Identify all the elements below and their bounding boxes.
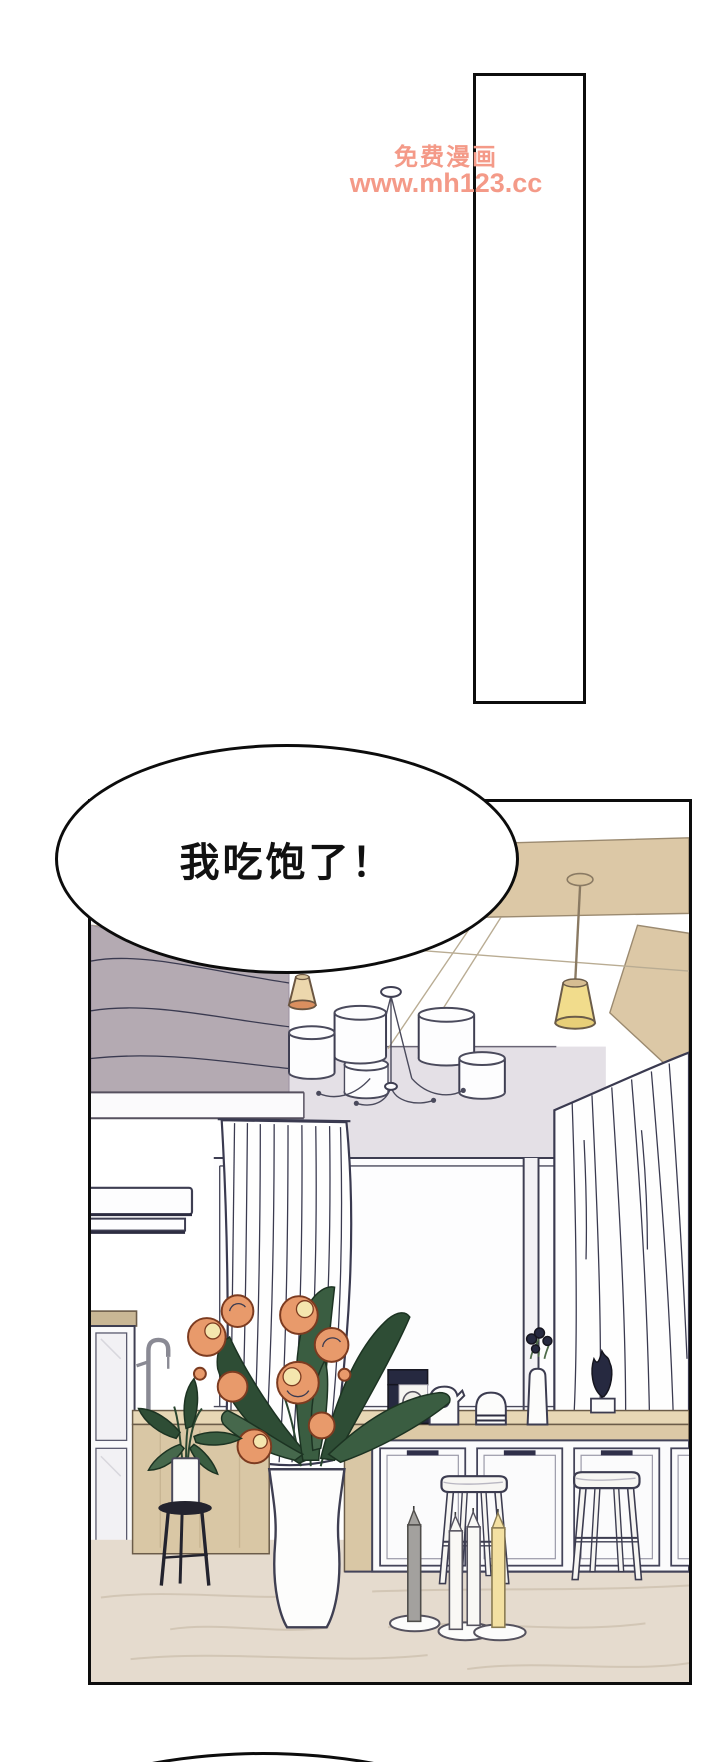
tall-cabinet: [91, 1311, 137, 1570]
watermark: 免费漫画 www.mh123.cc: [296, 146, 596, 198]
candle-white-1: [449, 1512, 462, 1629]
candle-gray: [408, 1506, 421, 1621]
candle-white-2: [467, 1508, 480, 1625]
watermark-line1: 免费漫画: [296, 146, 596, 170]
speech-bubble: 我吃饱了！: [55, 744, 519, 974]
comic-page: 免费漫画 www.mh123.cc: [0, 0, 720, 1762]
speech-bubble-partial: [0, 1752, 546, 1762]
curtain-right: [554, 1053, 689, 1415]
speech-bubble-text: 我吃饱了！: [180, 830, 395, 888]
cone-lamp: [289, 975, 316, 1010]
wall-unit: [91, 1188, 192, 1233]
watermark-line2: www.mh123.cc: [296, 170, 596, 198]
white-vase: [269, 1469, 344, 1627]
crown-molding: [91, 1092, 304, 1118]
candle-cream: [492, 1509, 505, 1627]
dome-canister: [476, 1393, 506, 1425]
faucet: [137, 1340, 169, 1411]
